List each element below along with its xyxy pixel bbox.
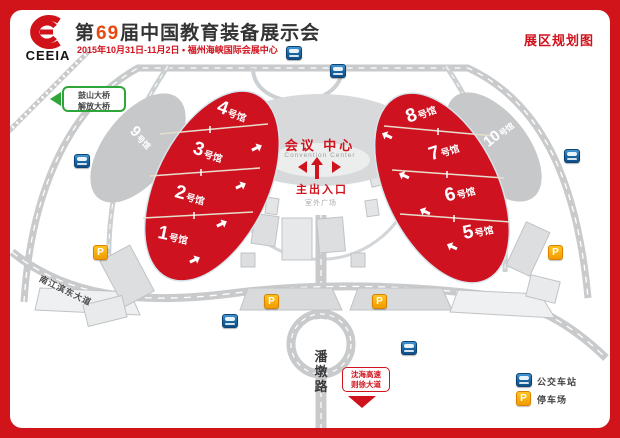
bus-stop-icon	[74, 154, 90, 168]
legend-parking-icon: P	[516, 391, 531, 406]
parking-icon: P	[548, 245, 563, 260]
building	[241, 253, 255, 267]
building	[506, 222, 550, 276]
parking-lot-left	[240, 288, 342, 310]
parking-icon: P	[264, 294, 279, 309]
parking-letter: P	[552, 247, 559, 258]
hall-suffix: 号馆	[416, 105, 438, 122]
hall-suffix: 号馆	[456, 186, 477, 202]
entrance-arrow-left-icon	[292, 161, 307, 173]
highway-direction-sign: 沈海高速 则徐大道	[342, 367, 390, 392]
building	[282, 218, 312, 260]
hall-suffix: 号馆	[440, 143, 461, 159]
bus-stop-icon	[286, 46, 302, 60]
legend-bus-icon	[516, 373, 532, 387]
event-date-venue: 2015年10月31日-11月2日 • 福州海峡国际会展中心	[77, 43, 278, 56]
parking-letter: P	[520, 393, 527, 404]
title-suffix: 届中国教育装备展示会	[120, 23, 320, 44]
hall-suffix: 号馆	[202, 149, 223, 165]
main-entrance-label: 主出入口	[262, 181, 382, 197]
parking-letter: P	[97, 247, 104, 258]
highway-direction-arrow-icon	[348, 396, 376, 408]
hall-suffix: 号馆	[184, 192, 205, 208]
building	[351, 253, 365, 267]
highway-sign-line2: 则徐大道	[343, 380, 389, 390]
hall-suffix: 号馆	[474, 225, 495, 240]
venue-map	[10, 10, 610, 428]
page-title: 第69届中国教育装备展示会	[75, 18, 320, 45]
bridge-sign-line1: 鼓山大桥	[64, 90, 124, 101]
hall-suffix: 号馆	[168, 232, 189, 247]
parking-icon: P	[93, 245, 108, 260]
building	[317, 217, 346, 253]
bus-stop-icon	[222, 314, 238, 328]
parking-letter: P	[268, 296, 275, 307]
logo-text: CEEIA	[20, 48, 76, 63]
plan-title: 展区规划图	[524, 30, 594, 49]
bus-stop-icon	[564, 149, 580, 163]
highway-sign-line1: 沈海高速	[343, 370, 389, 380]
parking-letter: P	[376, 296, 383, 307]
pandun-road-label: 潘墩路	[311, 349, 331, 394]
bridge-direction-sign: 鼓山大桥 解放大桥	[62, 86, 126, 112]
entrance-arrow-up-icon	[310, 157, 324, 179]
legend-parking-label: 停车场	[537, 393, 567, 406]
plan-card: CEEIA 第69届中国教育装备展示会 2015年10月31日-11月2日 • …	[10, 10, 610, 428]
title-prefix: 第	[75, 23, 95, 44]
parking-lot-right	[350, 288, 452, 310]
title-number: 69	[95, 23, 120, 44]
legend-bus-label: 公交车站	[537, 375, 577, 388]
parking-icon: P	[372, 294, 387, 309]
ceeia-logo	[22, 14, 68, 50]
entrance-arrow-right-icon	[332, 161, 347, 173]
bus-stop-icon	[401, 341, 417, 355]
bridge-direction-arrow-icon	[50, 92, 61, 106]
hall-suffix: 号馆	[226, 108, 248, 125]
outdoor-plaza-label: 室外广场	[271, 198, 371, 208]
bridge-sign-line2: 解放大桥	[64, 101, 124, 112]
bus-stop-icon	[330, 64, 346, 78]
